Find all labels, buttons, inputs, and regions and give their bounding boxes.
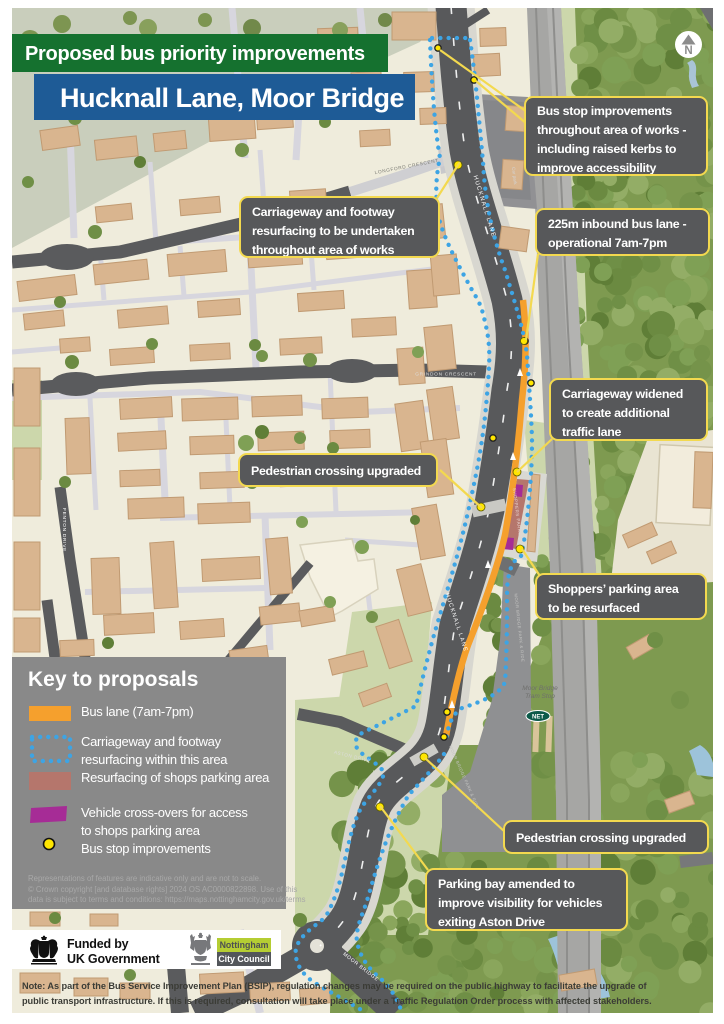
svg-text:GRINDON CRESCENT: GRINDON CRESCENT <box>415 372 477 378</box>
svg-text:FENTON DRIVE: FENTON DRIVE <box>61 508 67 552</box>
svg-text:N: N <box>684 45 692 57</box>
svg-text:Moor Bridge: Moor Bridge <box>522 685 558 692</box>
svg-text:Tram Stop: Tram Stop <box>525 693 555 700</box>
svg-text:NET: NET <box>532 715 544 721</box>
